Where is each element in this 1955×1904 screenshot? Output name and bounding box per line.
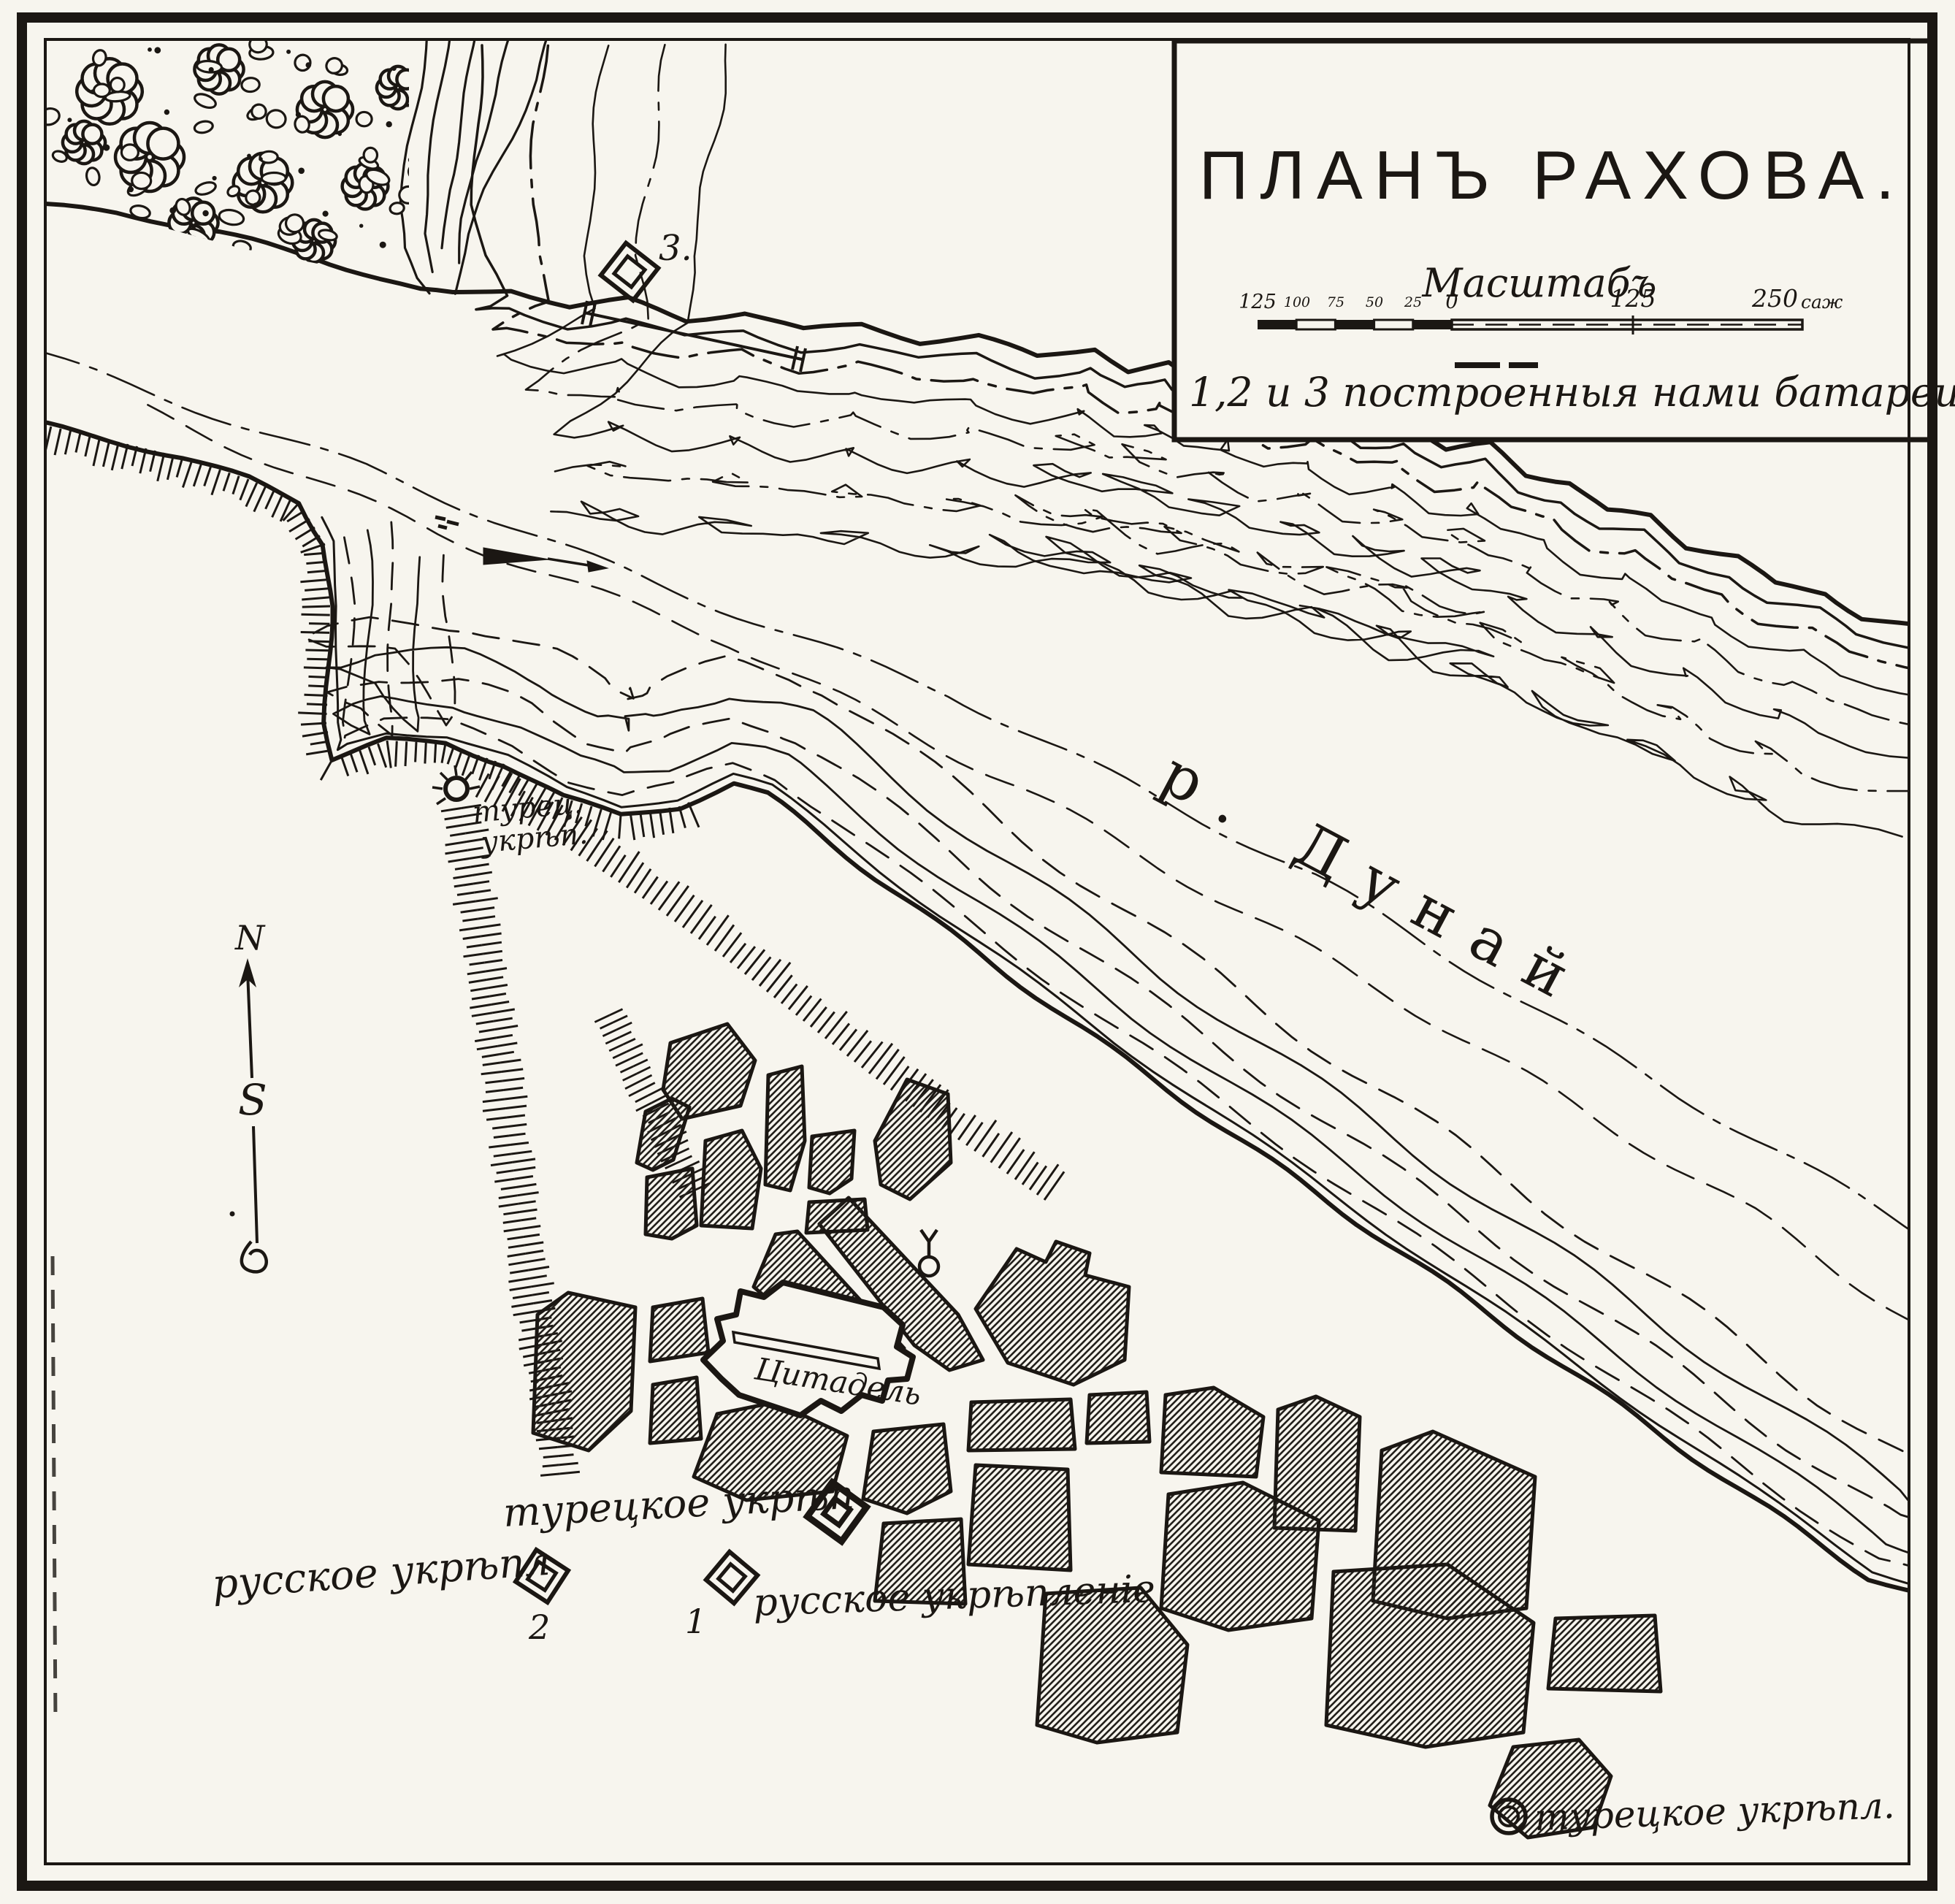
decor-line (301, 723, 326, 724)
decor-line (305, 695, 328, 695)
decor-circle (306, 62, 312, 68)
decor-circle (67, 118, 72, 122)
town-block (968, 1465, 1071, 1570)
town-block (646, 1169, 697, 1239)
battery-1-label: 1 (685, 1602, 706, 1641)
decor-line (309, 624, 329, 624)
decor-ellipse (364, 148, 377, 162)
decor-circle (209, 67, 214, 72)
decor-circle (324, 86, 348, 111)
decor-line (435, 743, 435, 762)
decor-line (302, 614, 330, 615)
town-block (863, 1424, 951, 1513)
svg-text:100: 100 (1284, 294, 1310, 310)
title-block: ПЛАНЪ РАХОВА. Масштабъ 125 100 75 50 25 … (1174, 41, 1955, 440)
battery-3-label: 3. (659, 228, 692, 269)
decor-circle (148, 47, 152, 52)
decor-line (302, 606, 330, 607)
svg-text:50: 50 (1366, 294, 1383, 310)
decor-ellipse (389, 202, 405, 215)
svg-text:25: 25 (1404, 294, 1422, 310)
decor-ellipse (121, 145, 138, 160)
decor-ellipse (94, 84, 110, 97)
decor-line (308, 686, 328, 687)
decor-circle (148, 129, 178, 159)
svg-text:саж: саж (1801, 291, 1843, 313)
svg-text:0: 0 (1445, 291, 1458, 313)
decor-circle (164, 110, 169, 115)
town-block (650, 1377, 701, 1443)
decor-circle (391, 66, 397, 71)
compass-south-label: S (238, 1075, 267, 1125)
decor-line (543, 1456, 559, 1458)
decor-ellipse (131, 172, 151, 189)
decor-circle (323, 211, 329, 217)
map-title: ПЛАНЪ РАХОВА. (1199, 137, 1907, 213)
historical-map-plan-rakhova: Цитадель 3. турец. укрѣп. турецкое укрѣп (0, 0, 1955, 1904)
decor-line (301, 632, 329, 633)
decor-circle (83, 125, 102, 144)
decor-line (309, 641, 329, 642)
decor-circle (128, 186, 134, 192)
decor-ellipse (250, 104, 267, 120)
decor-line (405, 741, 407, 766)
decor-circle (380, 242, 386, 248)
svg-text:125: 125 (1239, 291, 1277, 313)
town-block (1548, 1616, 1661, 1691)
decor-line (416, 742, 416, 762)
decor-circle (202, 210, 208, 216)
decor-circle (259, 157, 263, 161)
decor-circle (154, 47, 161, 53)
decor-circle (338, 132, 342, 136)
decor-circle (169, 207, 176, 214)
decor-circle (296, 112, 301, 117)
decor-circle (103, 145, 110, 151)
decor-line (425, 743, 426, 764)
compass-north-label: N (234, 918, 266, 957)
decor-ellipse (356, 112, 372, 126)
town-block (1087, 1392, 1149, 1443)
decor-circle (91, 89, 95, 93)
map-page: Цитадель 3. турец. укрѣп. турецкое укрѣп (0, 0, 1955, 1904)
svg-text:125: 125 (1610, 284, 1656, 313)
decor-line (304, 668, 329, 668)
town-block (968, 1399, 1075, 1450)
decor-ellipse (261, 172, 286, 184)
decor-line (305, 650, 329, 651)
decor-circle (253, 202, 258, 207)
decor-line (307, 704, 327, 705)
town-block (806, 1199, 868, 1233)
decor-circle (359, 224, 363, 228)
decor-circle (286, 50, 291, 54)
decor-line (396, 741, 397, 767)
decor-circle (386, 121, 392, 127)
decor-ellipse (110, 77, 125, 92)
decor-ellipse (241, 77, 260, 93)
svg-text:75: 75 (1327, 294, 1344, 310)
town-block (650, 1299, 708, 1361)
decor-circle (247, 154, 251, 158)
decor-line (298, 713, 326, 714)
decor-circle (213, 176, 217, 180)
decor-line (559, 1455, 574, 1456)
decor-circle (298, 168, 305, 175)
turkish-fort-ravine-label: турец. укрѣп. (471, 787, 589, 860)
legend-batteries-note: 1,2 и 3 построенныя нами батареи (1189, 369, 1955, 416)
svg-text:250: 250 (1751, 284, 1798, 313)
decor-ellipse (260, 151, 278, 163)
decor-line (307, 659, 329, 659)
battery-2-label: 2 (528, 1607, 550, 1647)
decor-line (309, 676, 329, 677)
